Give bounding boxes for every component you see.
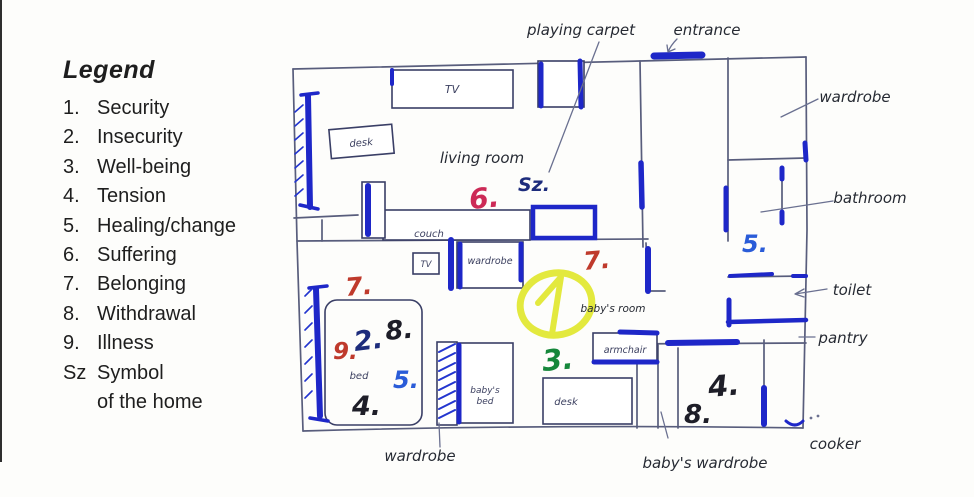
leader-toilet-arrow — [795, 289, 827, 297]
annotation-bedroom-7: 7. — [344, 271, 373, 302]
leader-bathroom — [761, 201, 833, 212]
kitchen-corner-curve — [786, 421, 803, 425]
leader-wardrobe-bottom — [439, 423, 440, 447]
annotation-bedroom-8: 8. — [384, 315, 414, 347]
annotation-kitchen-8: 8. — [684, 400, 712, 430]
entrance-arrow — [667, 39, 677, 52]
entrance-label: entrance — [674, 21, 741, 39]
babys-bed-box — [457, 343, 513, 423]
cooker-dots — [810, 415, 820, 420]
babys-room-label: baby's room — [580, 303, 645, 315]
annotation-living-6: 6. — [468, 180, 501, 215]
tv-living-label: TV — [445, 83, 461, 96]
annotation-bedroom-5: 5. — [393, 366, 419, 394]
kitchen-top-ink — [668, 342, 737, 343]
toilet-bottom-ink — [728, 320, 806, 322]
yellow-digit-1 — [538, 277, 561, 334]
annotation-kitchen-4: 4. — [706, 367, 741, 404]
furniture — [325, 61, 657, 425]
toilet-label: toilet — [833, 281, 873, 299]
window-bedroom-cap-top — [309, 286, 327, 288]
armchair-label: armchair — [604, 345, 648, 356]
annotation-bedroom-4: 4. — [351, 391, 381, 422]
bathroom-label: bathroom — [833, 189, 906, 207]
annotation-babys-7: 7. — [582, 245, 611, 276]
babys-wardrobe-label: baby's wardrobe — [642, 454, 767, 472]
desk-babys-label: desk — [554, 397, 579, 408]
bed-label: bed — [350, 371, 370, 382]
wall-hall-left — [640, 61, 643, 247]
window-bedroom — [316, 289, 320, 416]
bathroom-bottom-ink — [730, 274, 772, 276]
door-right-wall — [805, 143, 806, 160]
window-bedroom-cap-bottom — [310, 418, 328, 421]
leader-wardrobe-right — [781, 99, 818, 117]
leader-babys-wardrobe — [661, 412, 668, 438]
window-living-cap-top — [301, 93, 318, 95]
wall-living-step-h — [294, 215, 358, 218]
armchair-edge-top — [620, 332, 657, 333]
window-living-cap-bottom — [300, 205, 318, 209]
annotation-bedroom-2: 2. — [352, 324, 385, 358]
pantry-label: pantry — [817, 329, 868, 347]
annotation-bathroom-5: 5. — [742, 230, 768, 258]
annotation-living-sz: Sz. — [518, 174, 550, 196]
tv-bedroom-label: TV — [420, 260, 432, 270]
desk-living-label: desk — [349, 137, 375, 150]
entrance-door-mark — [654, 55, 702, 56]
window-living — [308, 96, 310, 207]
babys-bed-label-1: baby's — [470, 386, 500, 396]
wardrobe-right-label: wardrobe — [819, 88, 890, 106]
floor-plan-drawing: TV desk couch TV wardrobe bed baby's bed… — [0, 0, 974, 497]
cooker-label: cooker — [810, 435, 862, 453]
carpet-edge-right — [580, 61, 581, 107]
wardrobe-box-label: wardrobe — [467, 256, 512, 267]
living-room-label: living room — [440, 149, 524, 167]
wall-bottom — [303, 427, 803, 431]
annotation-babys-3: 3. — [541, 341, 575, 378]
couch-box — [383, 210, 530, 240]
babys-bed-label-2: bed — [477, 397, 494, 407]
page: { "legend": { "title": "Legend", "items"… — [0, 0, 974, 497]
blue-box-beside-couch — [533, 207, 595, 238]
couch-label: couch — [414, 229, 444, 240]
wall-wardrobe-room-bottom — [728, 158, 806, 160]
hatch-bedroom-window — [305, 289, 312, 398]
door-hall-left — [641, 163, 642, 207]
wall-right — [803, 57, 807, 428]
wardrobe-bottom-label: wardrobe — [384, 447, 455, 465]
playing-carpet-label: playing carpet — [526, 21, 636, 39]
